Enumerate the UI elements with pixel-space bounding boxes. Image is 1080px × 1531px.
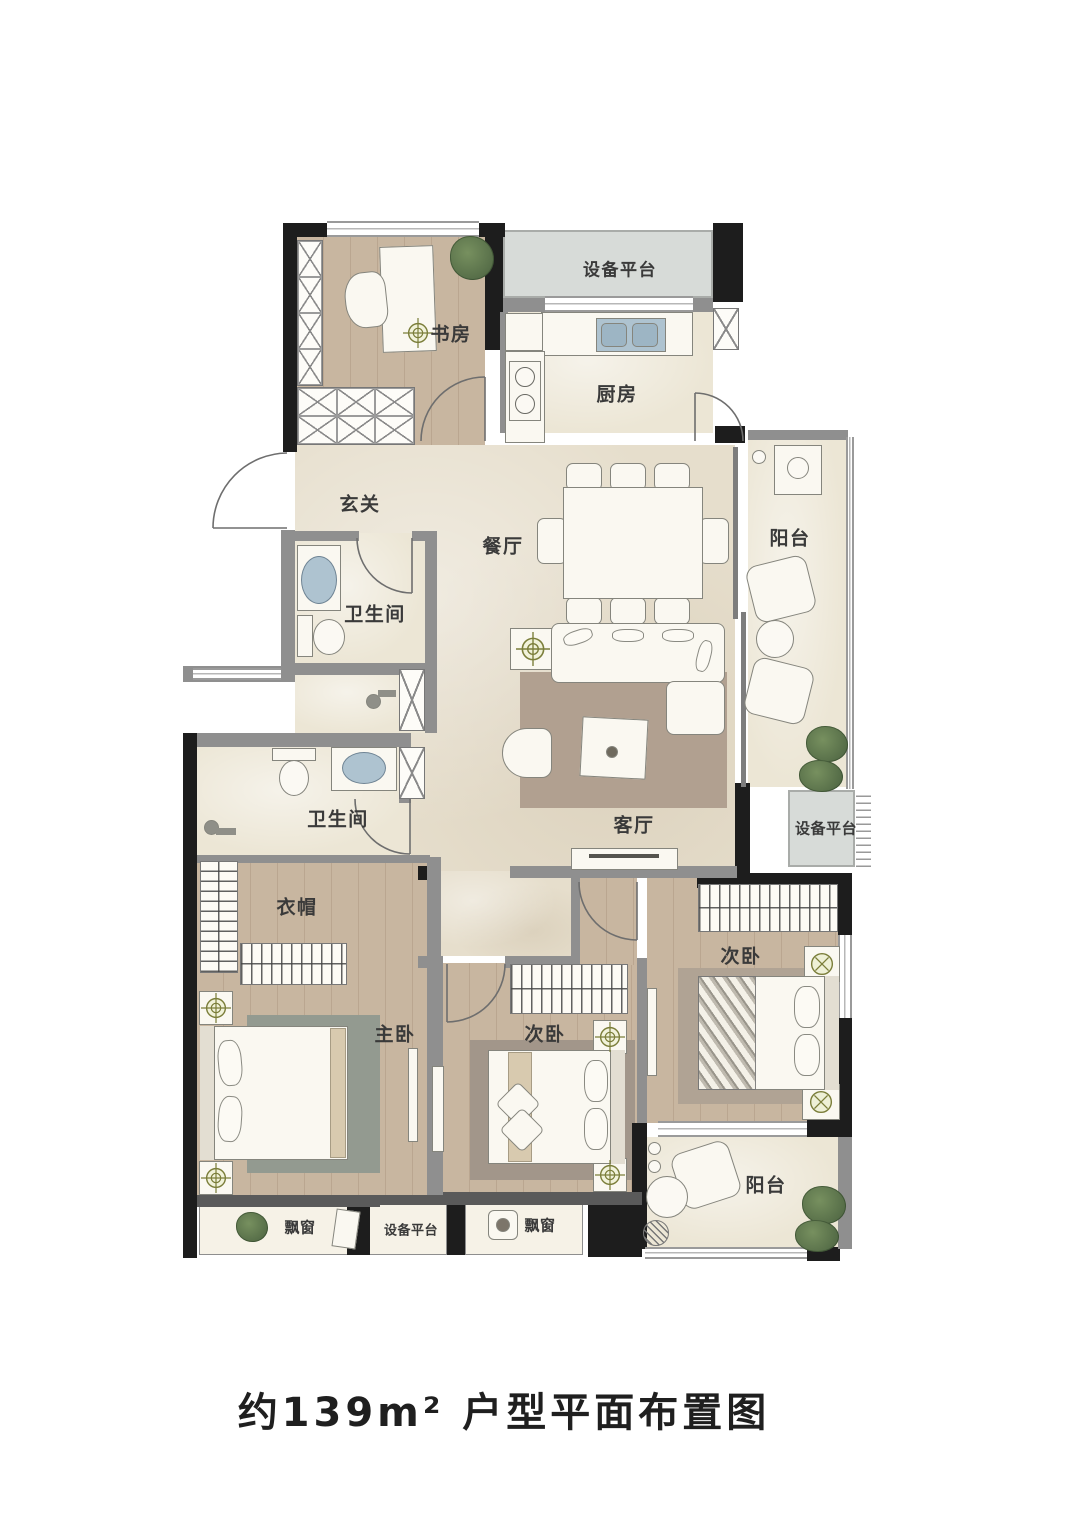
tv-panel: [408, 1048, 418, 1142]
washer-drum: [787, 457, 809, 479]
headboard: [200, 1026, 215, 1160]
pillow: [794, 1034, 820, 1076]
wall: [447, 1203, 465, 1255]
target-symbol: [595, 1160, 625, 1190]
plan-caption: 约139m² 户型平面布置图: [238, 1380, 771, 1438]
dining-chair: [610, 597, 646, 625]
window: [327, 221, 479, 237]
wall: [443, 1192, 642, 1205]
faucet-stem: [378, 690, 396, 697]
balcony-table: [756, 620, 794, 658]
dining-chair: [654, 597, 690, 625]
wall: [183, 733, 197, 1258]
floor-corridor: [431, 871, 571, 956]
washbasin: [301, 556, 337, 604]
target-symbol: [595, 1022, 625, 1052]
room-label-entry: 玄关: [339, 490, 380, 517]
plant: [806, 726, 848, 762]
room-label-balcony-bottom: 阳台: [745, 1171, 786, 1198]
target-symbol: [201, 993, 231, 1023]
headboard: [824, 976, 839, 1090]
wall: [197, 1195, 380, 1207]
washbasin: [342, 752, 386, 784]
bed-runner: [330, 1028, 346, 1158]
plant: [799, 760, 843, 792]
pillow: [584, 1108, 608, 1150]
room-label-bath-upper: 卫生间: [344, 600, 406, 627]
flue-shaft: [713, 308, 739, 350]
circle-x-symbol: [805, 1086, 837, 1118]
dining-chair: [566, 597, 602, 625]
sofa-chaise: [666, 681, 725, 735]
room-label-bay-mid: 飘窗: [524, 1215, 555, 1236]
window: [658, 1121, 807, 1137]
faucet-stem: [216, 828, 236, 835]
bedroom-middle-door: [577, 880, 639, 942]
wall: [295, 531, 359, 541]
wall: [735, 783, 750, 883]
burner: [515, 367, 535, 387]
room-label-master: 主卧: [374, 1020, 415, 1047]
toilet-bowl: [313, 619, 345, 655]
wall: [748, 430, 848, 440]
room-label-equip-top: 设备平台: [583, 256, 657, 281]
plant: [236, 1212, 268, 1242]
master-door: [445, 962, 507, 1024]
wall: [425, 531, 437, 675]
sink-basin: [632, 323, 658, 347]
plant: [802, 1186, 846, 1224]
drain: [648, 1142, 661, 1155]
room-label-bedroom-middle: 次卧: [524, 1020, 565, 1047]
drain: [752, 450, 766, 464]
coffee-table-decor: [606, 746, 618, 758]
wall: [380, 1195, 443, 1205]
target-symbol: [516, 632, 550, 666]
dining-chair: [699, 518, 729, 564]
wall: [713, 223, 743, 302]
sink-basin: [601, 323, 627, 347]
target-symbol: [403, 318, 433, 348]
target-symbol: [201, 1163, 231, 1193]
bath-upper-door: [355, 536, 415, 596]
floor-plan: 设备平台 书房 厨房 玄关 餐厅 阳台 卫生间 卫生间 客厅 设备平台 衣帽 次…: [0, 0, 1080, 1531]
room-label-bedroom-right: 次卧: [720, 942, 761, 969]
pillow: [584, 1060, 608, 1102]
room-label-bay-left: 飘窗: [284, 1217, 315, 1238]
tv-panel: [432, 1066, 444, 1152]
wall: [281, 530, 295, 682]
circle-x-symbol: [806, 948, 838, 980]
wall: [637, 958, 647, 1123]
room-label-equip-right: 设备平台: [795, 818, 857, 839]
tv-panel: [647, 988, 657, 1076]
sofa-pillow: [612, 629, 644, 642]
sofa-pillow: [662, 629, 694, 642]
wall: [427, 857, 441, 956]
wall: [425, 663, 437, 733]
room-label-equip-bottom: 设备平台: [384, 1220, 438, 1239]
bay-decor-dot: [496, 1218, 510, 1232]
balcony-table: [646, 1176, 688, 1218]
study-door: [419, 375, 489, 445]
wall: [838, 1018, 852, 1140]
lounge-chair: [502, 728, 552, 778]
toilet-tank: [297, 615, 313, 657]
window: [838, 935, 852, 1018]
room-label-study: 书房: [430, 320, 471, 347]
wall: [838, 873, 852, 935]
kitchen-balcony-door: [693, 391, 745, 443]
wall: [197, 733, 411, 747]
balcony-glass: [846, 437, 854, 789]
pipe-shaft: [399, 669, 425, 731]
room-label-kitchen: 厨房: [596, 380, 637, 407]
headboard: [610, 1050, 625, 1164]
room-label-dining: 餐厅: [482, 532, 523, 559]
equip-right-grille: [856, 790, 871, 867]
study-bookshelf: [297, 240, 323, 386]
dining-table: [563, 487, 703, 599]
floor-drain: [643, 1220, 669, 1246]
tv-console: [571, 848, 678, 870]
window: [545, 296, 693, 312]
burner: [515, 394, 535, 414]
tv: [589, 854, 659, 858]
pillow: [794, 986, 820, 1028]
room-label-bath-lower: 卫生间: [307, 805, 369, 832]
room-label-living: 客厅: [613, 811, 654, 838]
window: [193, 668, 281, 680]
plant: [450, 236, 494, 280]
wall: [807, 1120, 838, 1137]
balcony-railing: [645, 1247, 807, 1259]
plant: [795, 1220, 839, 1252]
fridge: [505, 313, 543, 351]
sliding-door-track: [733, 447, 738, 619]
pipe-shaft: [399, 747, 425, 799]
wall: [283, 223, 297, 452]
room-label-balcony-right: 阳台: [769, 524, 810, 551]
wardrobe: [510, 964, 628, 1014]
wardrobe: [240, 943, 347, 985]
entry-door: [211, 450, 289, 530]
wall: [418, 956, 443, 968]
wardrobe: [200, 861, 238, 973]
drain: [648, 1160, 661, 1173]
room-label-cloakroom: 衣帽: [276, 893, 317, 920]
entry-cabinet: [297, 387, 415, 445]
wardrobe: [698, 884, 838, 932]
bay-window-left-box: [199, 1203, 349, 1255]
blanket: [698, 976, 756, 1090]
toilet-bowl: [279, 760, 309, 796]
